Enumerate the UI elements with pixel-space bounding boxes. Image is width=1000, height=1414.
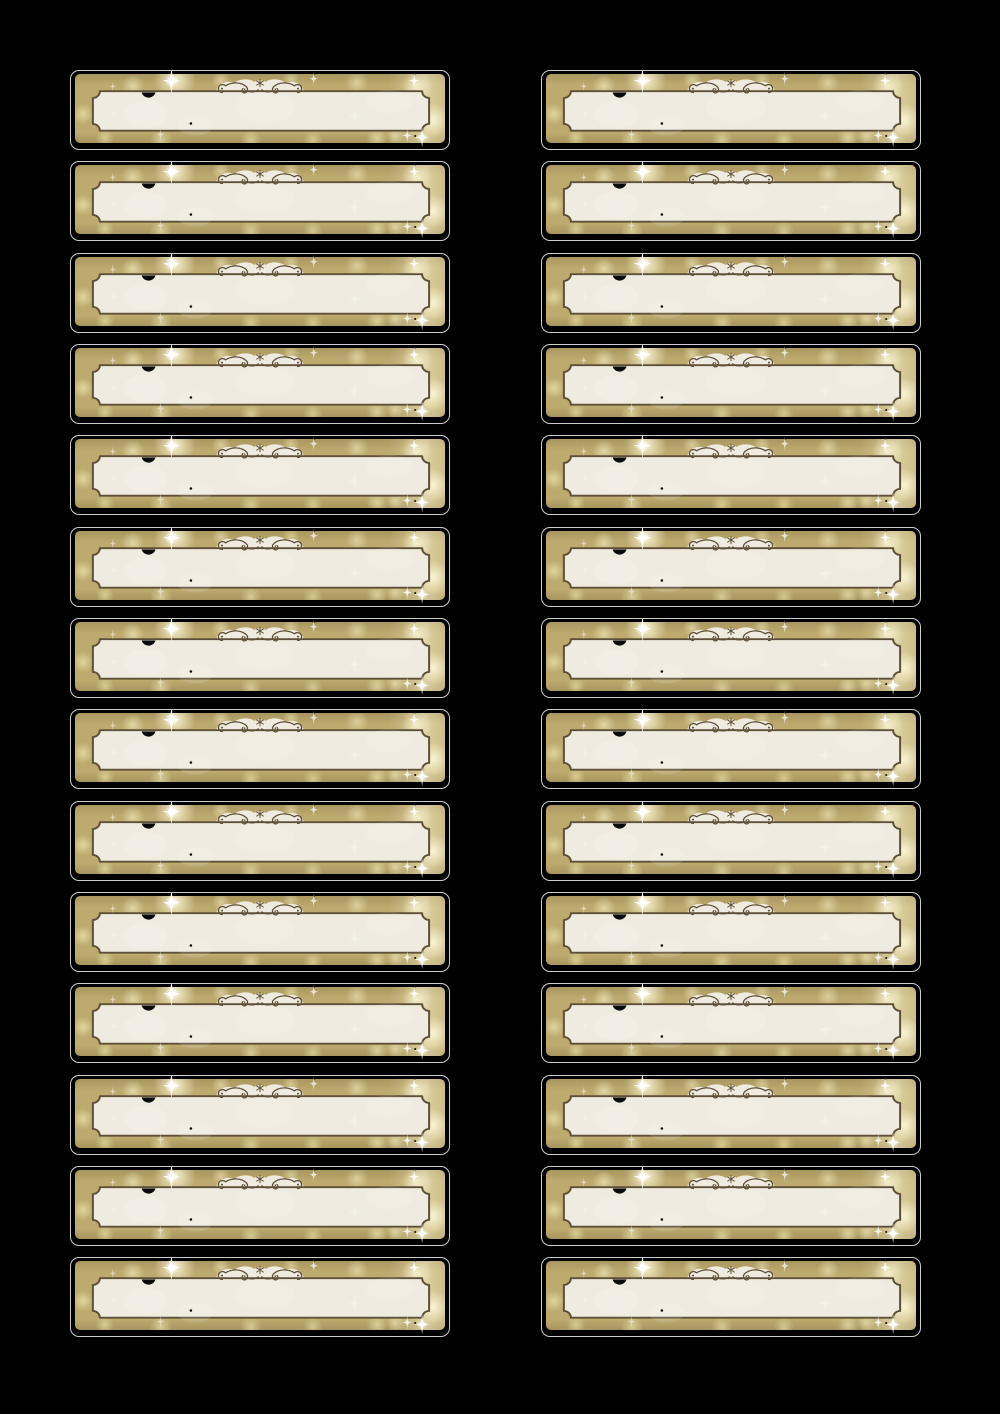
label-frame-graphic (542, 1258, 920, 1335)
label-frame-graphic (542, 71, 920, 148)
label-frame-graphic (542, 710, 920, 787)
label-frame-graphic (542, 528, 920, 605)
blank-label-sticker[interactable] (70, 1257, 450, 1337)
blank-label-sticker[interactable] (541, 253, 921, 333)
blank-label-sticker[interactable] (541, 435, 921, 515)
blank-label-sticker[interactable] (541, 983, 921, 1063)
label-frame-graphic (71, 984, 449, 1061)
label-frame-graphic (542, 984, 920, 1061)
blank-label-sticker[interactable] (541, 161, 921, 241)
label-frame-graphic (71, 710, 449, 787)
label-frame-graphic (71, 71, 449, 148)
label-frame-graphic (542, 893, 920, 970)
blank-label-sticker[interactable] (70, 527, 450, 607)
label-frame-graphic (542, 162, 920, 239)
label-frame-graphic (71, 528, 449, 605)
label-frame-graphic (542, 802, 920, 879)
blank-label-sticker[interactable] (70, 253, 450, 333)
blank-label-sticker[interactable] (70, 344, 450, 424)
label-frame-graphic (542, 345, 920, 422)
label-frame-graphic (71, 1167, 449, 1244)
label-frame-graphic (71, 436, 449, 513)
blank-label-sticker[interactable] (70, 709, 450, 789)
label-frame-graphic (542, 1167, 920, 1244)
blank-label-sticker[interactable] (70, 983, 450, 1063)
label-frame-graphic (71, 162, 449, 239)
blank-label-sticker[interactable] (541, 892, 921, 972)
blank-label-sticker[interactable] (70, 161, 450, 241)
blank-label-sticker[interactable] (70, 892, 450, 972)
label-frame-graphic (542, 619, 920, 696)
blank-label-sticker[interactable] (70, 1075, 450, 1155)
blank-label-sticker[interactable] (70, 618, 450, 698)
blank-label-sticker[interactable] (70, 801, 450, 881)
blank-label-sticker[interactable] (70, 1166, 450, 1246)
blank-label-sticker[interactable] (541, 618, 921, 698)
label-frame-graphic (71, 254, 449, 331)
blank-label-sticker[interactable] (541, 709, 921, 789)
label-frame-graphic (542, 436, 920, 513)
label-frame-graphic (71, 619, 449, 696)
blank-label-sticker[interactable] (541, 527, 921, 607)
label-frame-graphic (71, 893, 449, 970)
label-frame-graphic (71, 345, 449, 422)
label-frame-graphic (71, 1258, 449, 1335)
blank-label-sticker[interactable] (541, 1075, 921, 1155)
label-sheet (0, 0, 1000, 1414)
blank-label-sticker[interactable] (541, 1166, 921, 1246)
blank-label-sticker[interactable] (541, 344, 921, 424)
blank-label-sticker[interactable] (541, 70, 921, 150)
blank-label-sticker[interactable] (70, 70, 450, 150)
label-frame-graphic (71, 802, 449, 879)
label-frame-graphic (542, 1076, 920, 1153)
label-frame-graphic (542, 254, 920, 331)
blank-label-sticker[interactable] (541, 1257, 921, 1337)
blank-label-sticker[interactable] (70, 435, 450, 515)
label-frame-graphic (71, 1076, 449, 1153)
blank-label-sticker[interactable] (541, 801, 921, 881)
